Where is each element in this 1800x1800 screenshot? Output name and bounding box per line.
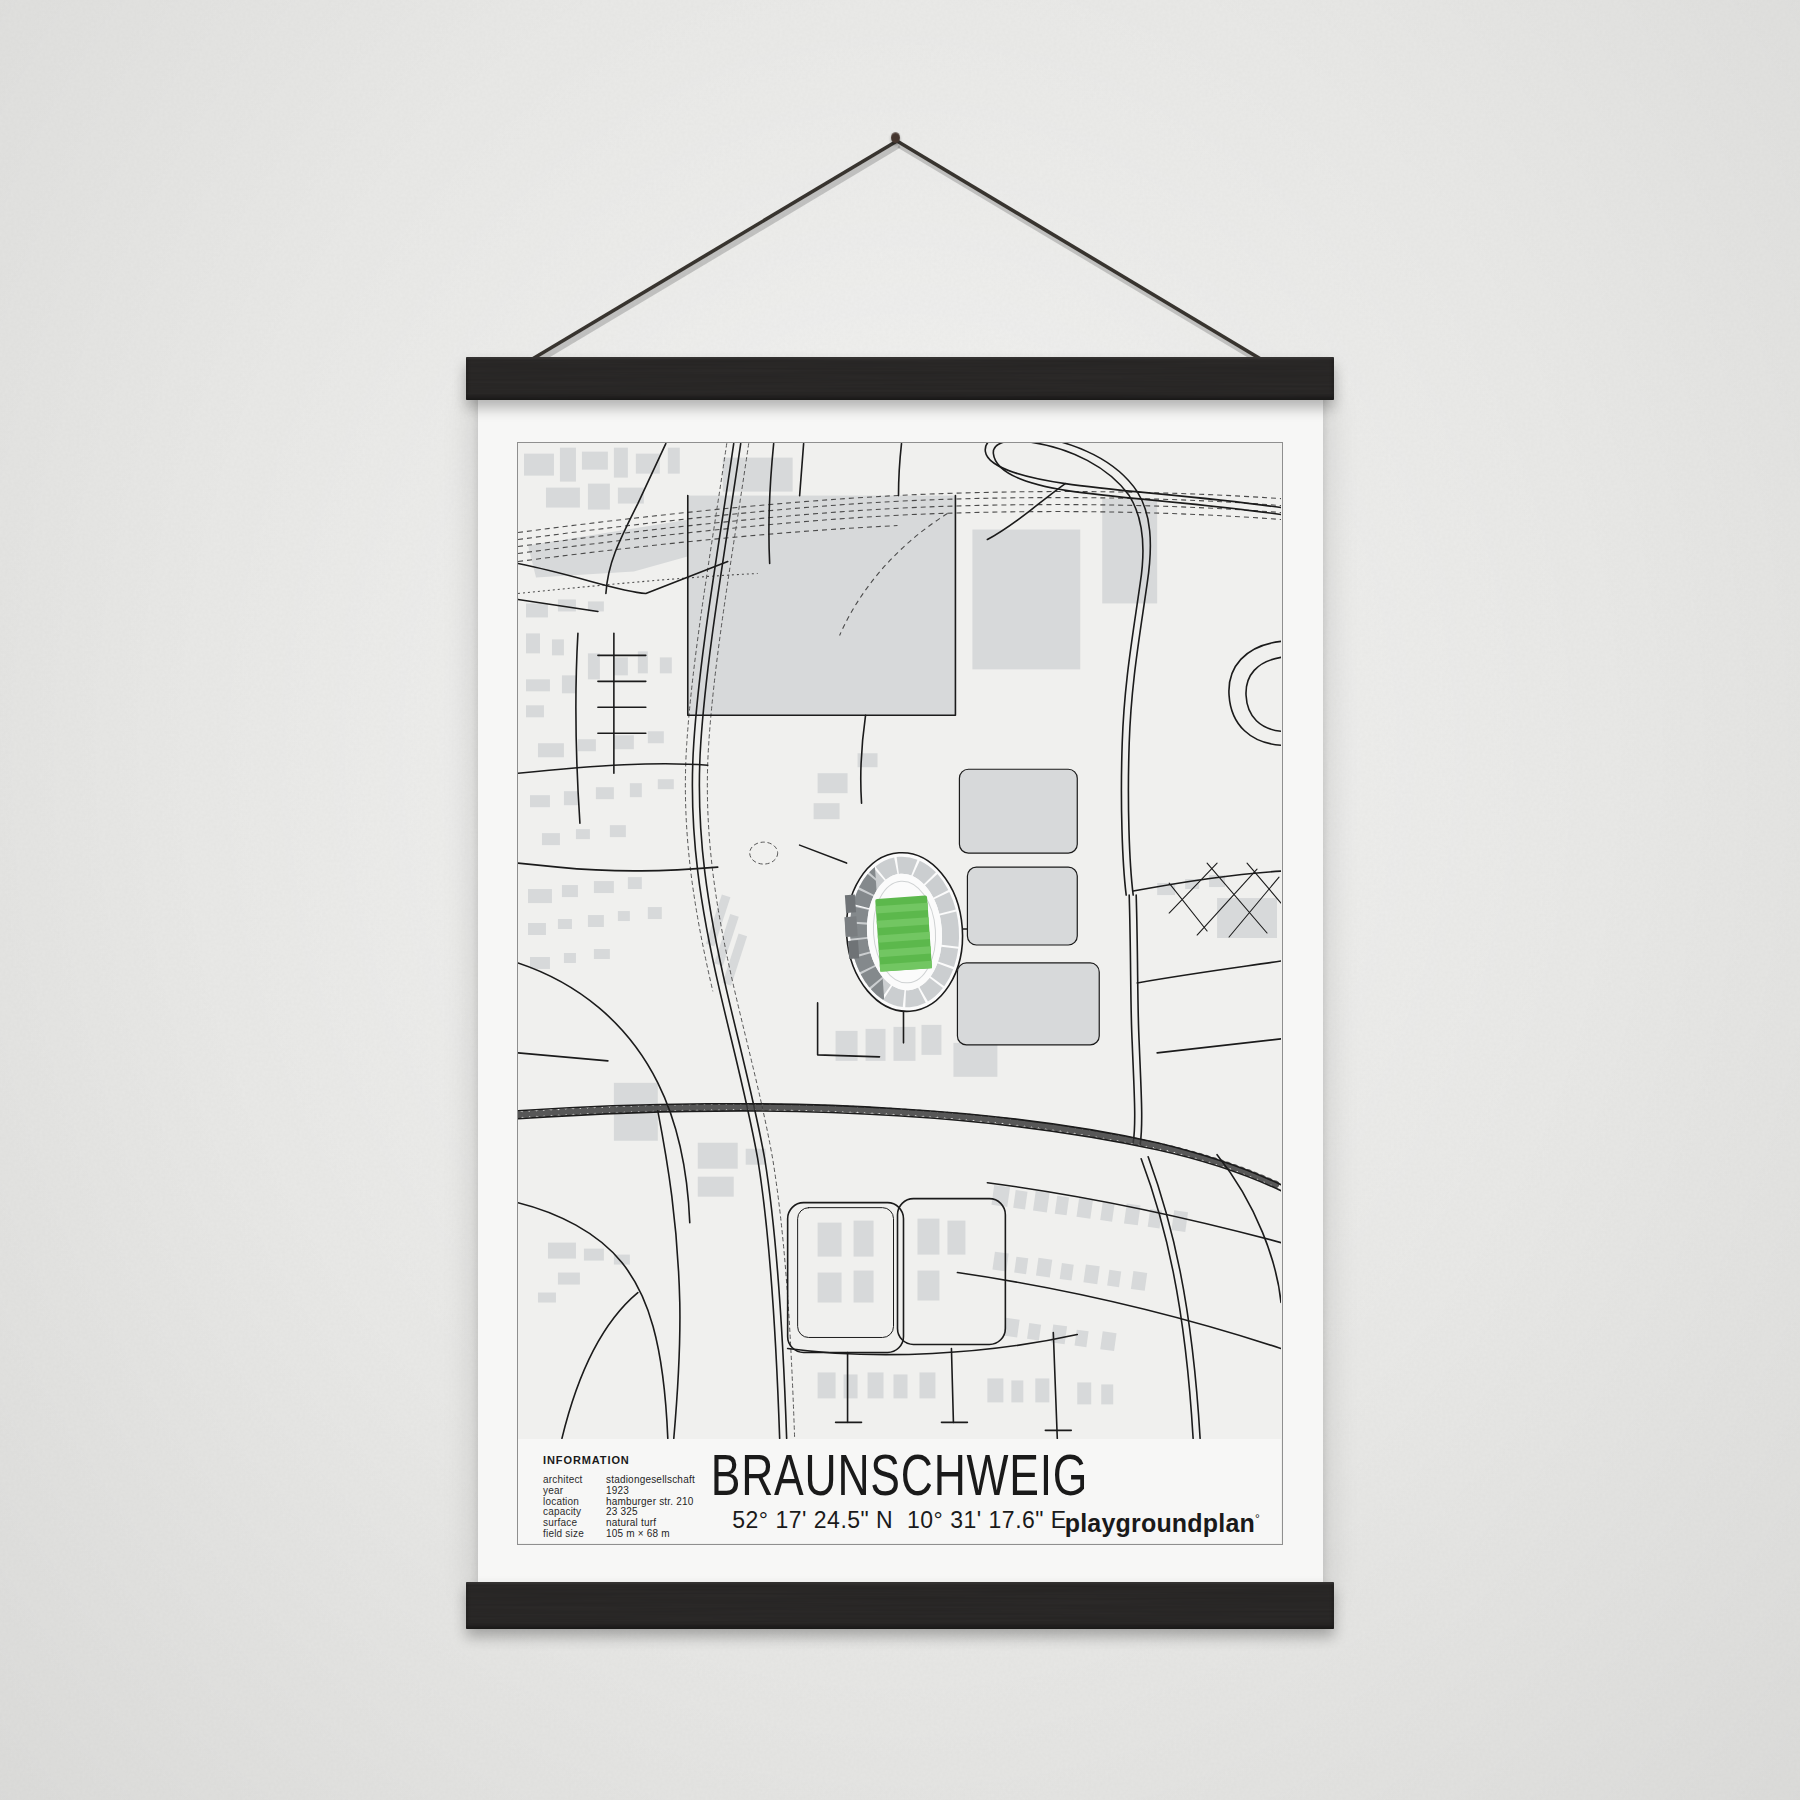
hanger-bar-top bbox=[466, 357, 1334, 400]
brand-logo: playgroundplan° bbox=[1065, 1506, 1260, 1536]
hanger-bar-bottom bbox=[466, 1582, 1334, 1629]
stadium-map-graphic bbox=[518, 443, 1281, 1439]
stadium-pitch bbox=[875, 895, 932, 971]
parking-lots bbox=[957, 769, 1099, 1045]
poster-frame-border: INFORMATION architect stadiongesellschaf… bbox=[517, 442, 1283, 1545]
wall-nail bbox=[891, 132, 900, 143]
brand-text: playgroundplan bbox=[1065, 1509, 1255, 1537]
brand-mark: ° bbox=[1255, 1512, 1260, 1526]
info-label: year bbox=[543, 1486, 606, 1497]
page-title: BRAUNSCHWEIG bbox=[602, 1447, 1197, 1504]
stadium bbox=[840, 849, 968, 1016]
poster-paper: INFORMATION architect stadiongesellschaf… bbox=[478, 380, 1323, 1586]
photo-scene: INFORMATION architect stadiongesellschaf… bbox=[0, 0, 1800, 1800]
